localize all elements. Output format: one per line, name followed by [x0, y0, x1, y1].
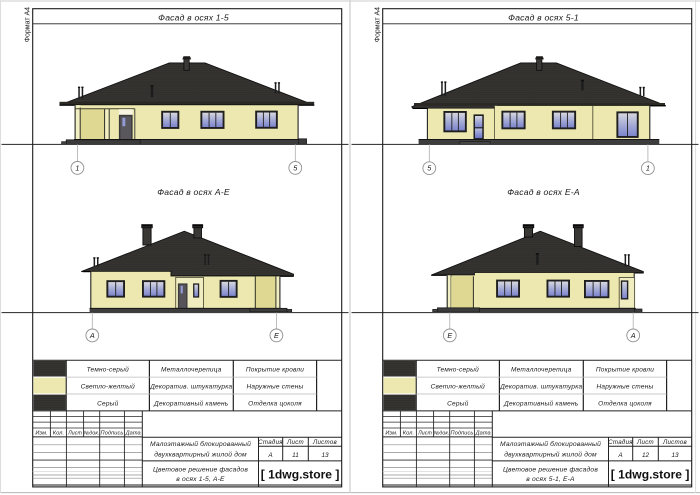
svg-text:Е: Е: [447, 331, 452, 340]
svg-text:Серый: Серый: [97, 399, 119, 407]
svg-text:№док.: №док.: [434, 431, 450, 437]
svg-text:Лист: Лист: [286, 439, 304, 446]
svg-text:Лист: Лист: [636, 439, 654, 446]
svg-text:Кол.: Кол.: [53, 431, 64, 437]
svg-text:Светло-желтый: Светло-желтый: [81, 382, 136, 390]
svg-text:Изм.: Изм.: [385, 431, 397, 437]
svg-text:Лист: Лист: [67, 431, 82, 437]
svg-text:Фасад в осях Е-А: Фасад в осях Е-А: [507, 187, 580, 197]
svg-text:[ 1dwg.store ]: [ 1dwg.store ]: [261, 467, 340, 481]
svg-text:Листов: Листов: [662, 439, 688, 446]
svg-text:Фасад в осях А-Е: Фасад в осях А-Е: [157, 187, 230, 197]
svg-text:Малоэтажный блокированный: Малоэтажный блокированный: [500, 440, 601, 448]
svg-text:Малоэтажный блокированный: Малоэтажный блокированный: [150, 440, 251, 448]
svg-text:Листов: Листов: [312, 439, 338, 446]
svg-text:[ 1dwg.store ]: [ 1dwg.store ]: [611, 467, 690, 481]
svg-text:Стадия: Стадия: [608, 439, 633, 446]
svg-text:двухквартирный жилой дом: двухквартирный жилой дом: [154, 450, 247, 458]
svg-text:Лист: Лист: [417, 431, 432, 437]
svg-text:Фасад в осях 1-5: Фасад в осях 1-5: [158, 13, 229, 23]
svg-text:Покрытие кровли: Покрытие кровли: [596, 367, 654, 374]
svg-text:двухквартирный жилой дом: двухквартирный жилой дом: [504, 450, 597, 458]
svg-text:Подпись: Подпись: [451, 431, 474, 437]
svg-text:Изм.: Изм.: [35, 431, 47, 437]
svg-text:Кол.: Кол.: [403, 431, 414, 437]
svg-text:13: 13: [321, 452, 329, 459]
svg-text:11: 11: [292, 452, 299, 459]
svg-text:Наружные стены: Наружные стены: [596, 383, 653, 390]
svg-text:Темно-серый: Темно-серый: [87, 366, 130, 374]
svg-text:Стадия: Стадия: [258, 439, 283, 446]
svg-text:Наружные стены: Наружные стены: [246, 383, 303, 390]
svg-text:Дата: Дата: [475, 431, 491, 437]
svg-text:А: А: [617, 452, 622, 459]
svg-text:Металлочерепица: Металлочерепица: [161, 367, 222, 374]
svg-text:Декоратив. штукатурка: Декоратив. штукатурка: [149, 383, 232, 390]
svg-text:Цветовое решение фасадов: Цветовое решение фасадов: [153, 465, 248, 473]
svg-text:Декоративный камень: Декоративный камень: [153, 399, 229, 407]
svg-text:Темно-серый: Темно-серый: [437, 366, 480, 374]
svg-text:Формат А4: Формат А4: [25, 7, 32, 42]
svg-text:1: 1: [646, 164, 650, 173]
svg-text:Формат А4: Формат А4: [375, 7, 382, 42]
svg-text:1: 1: [75, 163, 79, 172]
svg-text:№док.: №док.: [84, 431, 100, 437]
svg-text:Металлочерепица: Металлочерепица: [511, 367, 572, 374]
svg-text:Дата: Дата: [125, 431, 141, 437]
svg-text:А: А: [267, 452, 272, 459]
svg-text:Серый: Серый: [447, 399, 469, 407]
svg-text:Декоративный камень: Декоративный камень: [503, 399, 579, 407]
svg-text:Цветовое решение фасадов: Цветовое решение фасадов: [503, 465, 598, 473]
svg-text:Отделка цоколя: Отделка цоколя: [248, 399, 302, 407]
svg-text:А: А: [89, 331, 95, 340]
svg-text:Светло-желтый: Светло-желтый: [431, 382, 486, 390]
svg-text:12: 12: [642, 452, 650, 459]
svg-text:Декоратив. штукатурка: Декоратив. штукатурка: [499, 383, 582, 390]
svg-text:Фасад в осях 5-1: Фасад в осях 5-1: [508, 13, 579, 23]
svg-text:в осях 1-5, А-Е: в осях 1-5, А-Е: [176, 476, 225, 483]
svg-text:Е: Е: [274, 331, 279, 340]
svg-text:А: А: [630, 331, 636, 340]
svg-text:Подпись: Подпись: [101, 431, 124, 437]
svg-text:13: 13: [671, 452, 679, 459]
svg-text:в осях 5-1, Е-А: в осях 5-1, Е-А: [526, 476, 575, 483]
svg-text:Отделка цоколя: Отделка цоколя: [598, 399, 652, 407]
svg-text:Покрытие кровли: Покрытие кровли: [246, 367, 304, 374]
